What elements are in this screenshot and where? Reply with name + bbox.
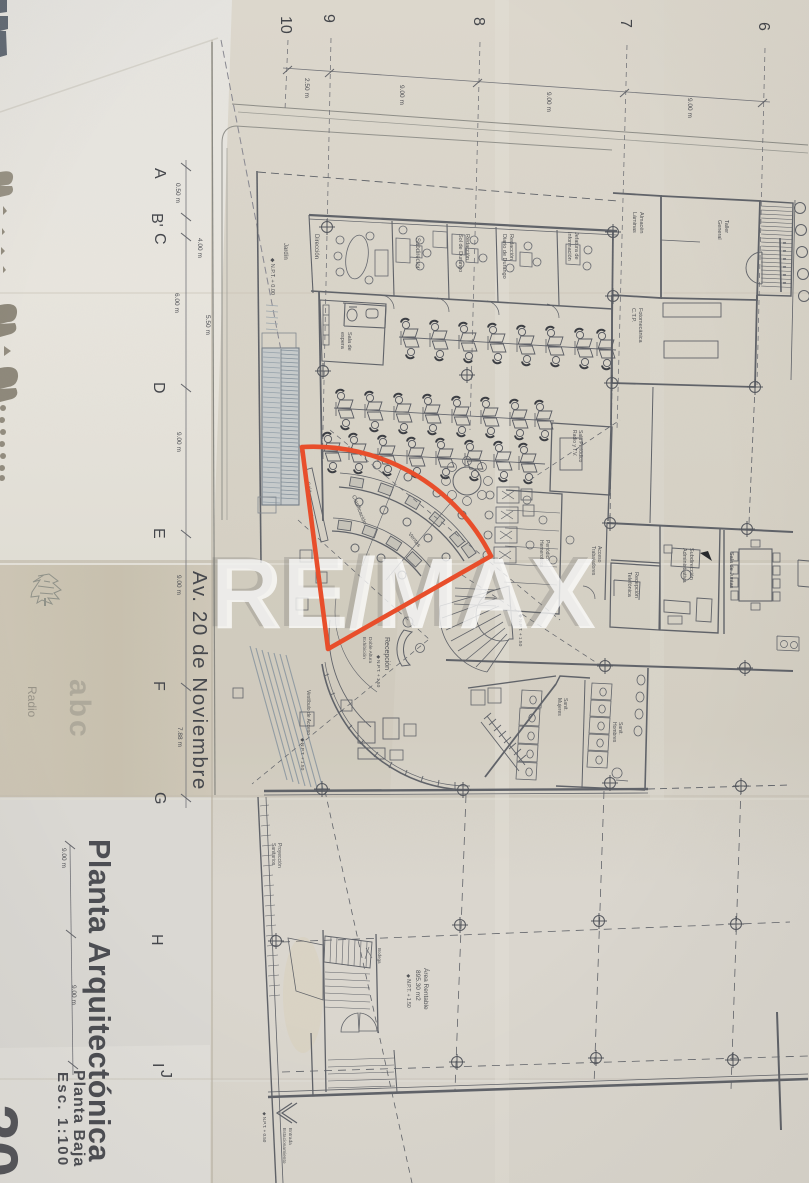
- svg-text:RE/MAX: RE/MAX: [211, 538, 596, 650]
